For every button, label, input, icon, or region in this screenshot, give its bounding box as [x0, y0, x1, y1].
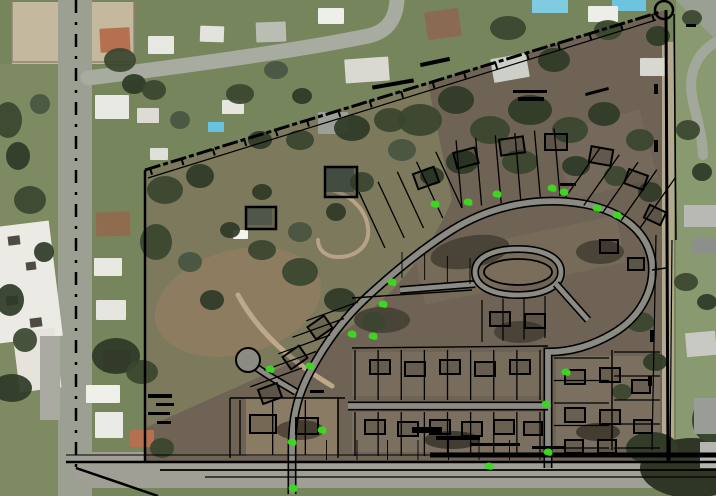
- building-outline: [634, 420, 652, 433]
- tree: [178, 252, 202, 272]
- building-outline: [296, 418, 318, 434]
- terrain-patch: [694, 398, 716, 434]
- tree: [286, 130, 314, 150]
- building-outline: [325, 167, 357, 197]
- tree: [288, 222, 312, 242]
- street-tree-marker: [392, 282, 397, 286]
- annotation-mark: [156, 403, 174, 406]
- tree: [612, 384, 632, 400]
- annotation-mark: [470, 443, 520, 446]
- tree: [252, 184, 272, 200]
- building-outline: [246, 207, 276, 229]
- tree: [292, 88, 312, 104]
- house-roof: [96, 211, 131, 236]
- street-tree-marker: [597, 208, 602, 212]
- house-roof: [344, 56, 390, 83]
- tree: [13, 328, 37, 352]
- street-tree-marker: [497, 194, 502, 198]
- tree: [562, 156, 590, 176]
- terrain-patch: [684, 205, 716, 227]
- tree: [264, 61, 288, 79]
- street-tree-marker: [373, 336, 378, 340]
- tree: [142, 80, 166, 100]
- annotation-mark: [532, 446, 566, 449]
- tree: [14, 186, 46, 214]
- building-outline: [524, 422, 542, 435]
- tree: [30, 94, 50, 114]
- building-outline: [405, 362, 425, 376]
- terrain-patch: [40, 336, 60, 420]
- annotation-mark: [650, 330, 654, 342]
- street-tree-marker: [322, 430, 327, 434]
- street-tree-marker: [617, 215, 622, 219]
- house-roof: [424, 8, 462, 40]
- annotation-mark: [654, 84, 658, 94]
- house-roof: [95, 95, 129, 119]
- tree: [220, 222, 240, 238]
- street-tree-marker: [293, 488, 298, 492]
- annotation-mark: [310, 390, 324, 393]
- house-roof: [256, 21, 287, 42]
- building-outline: [525, 314, 545, 328]
- building-outline: [475, 362, 495, 376]
- tree: [388, 139, 416, 161]
- terrain-patch: [26, 261, 37, 270]
- tree: [126, 360, 158, 384]
- annotation-mark: [686, 24, 696, 27]
- street-tree-marker: [468, 202, 473, 206]
- street-tree-marker: [383, 304, 388, 308]
- house-roof: [94, 258, 122, 276]
- house-roof: [130, 430, 154, 447]
- building-outline: [510, 360, 530, 374]
- annotation-mark: [560, 183, 576, 186]
- street-tree-marker: [292, 442, 297, 446]
- street-tree-marker: [552, 188, 557, 192]
- tree: [643, 353, 667, 371]
- house-roof: [200, 26, 225, 43]
- tree: [626, 129, 654, 151]
- house-roof: [95, 412, 123, 438]
- tree: [438, 86, 474, 114]
- annotation-mark: [148, 394, 172, 398]
- building-outline: [545, 134, 567, 150]
- building-outline: [565, 408, 585, 422]
- annotation-mark: [648, 376, 652, 386]
- annotation-mark: [654, 140, 658, 152]
- annotation-mark: [513, 90, 547, 93]
- building-outline: [370, 360, 390, 374]
- tree: [682, 10, 702, 26]
- tree: [200, 290, 224, 310]
- building-outline: [462, 422, 482, 436]
- building-outline: [499, 136, 525, 155]
- tree: [490, 16, 526, 40]
- street-tree-marker: [546, 404, 551, 408]
- plat-circle: [484, 259, 552, 285]
- building-outline: [628, 258, 644, 270]
- building-outline: [600, 368, 620, 382]
- house-roof: [150, 148, 168, 160]
- terrain-patch: [7, 235, 20, 245]
- tree: [588, 102, 620, 126]
- tree: [692, 163, 712, 181]
- building-outline: [365, 420, 385, 434]
- tree: [248, 240, 276, 260]
- tree: [186, 164, 214, 188]
- annotation-mark: [436, 436, 480, 440]
- building-outline: [440, 360, 460, 374]
- building-outline: [250, 415, 276, 433]
- plat-circle: [236, 348, 260, 372]
- house-roof: [318, 8, 344, 24]
- street-tree-marker: [566, 372, 571, 376]
- aerial-plat-canvas: [0, 0, 716, 496]
- map-viewport[interactable]: [0, 0, 716, 496]
- street-tree-marker: [270, 369, 275, 373]
- tree: [676, 120, 700, 140]
- building-outline: [490, 312, 510, 326]
- street-tree-marker: [489, 466, 494, 470]
- tree: [326, 203, 346, 221]
- building-outline: [598, 440, 616, 453]
- street-tree-marker: [435, 204, 440, 208]
- tree: [34, 242, 54, 262]
- tree: [362, 312, 386, 332]
- annotation-mark: [518, 97, 544, 101]
- terrain-patch: [692, 238, 716, 254]
- tree: [226, 84, 254, 104]
- tree: [104, 48, 136, 72]
- terrain-patch: [685, 331, 716, 358]
- annotation-mark: [412, 427, 442, 433]
- house-roof: [640, 58, 668, 76]
- building-outline: [494, 420, 514, 434]
- house-roof: [137, 108, 159, 123]
- tree: [398, 104, 442, 136]
- tree: [674, 273, 698, 291]
- street-tree-marker: [548, 452, 553, 456]
- building-outline: [565, 440, 583, 453]
- tree: [282, 258, 318, 286]
- terrain-patch: [532, 0, 568, 13]
- house-roof: [148, 36, 174, 54]
- tree: [6, 142, 30, 170]
- plat-line: [666, 10, 668, 462]
- house-roof: [96, 300, 126, 320]
- house-roof: [588, 6, 618, 22]
- tree: [147, 176, 183, 204]
- building-outline: [600, 240, 618, 253]
- street-tree-marker: [352, 334, 357, 338]
- building-outline: [589, 146, 613, 166]
- building-outline: [632, 380, 650, 393]
- annotation-mark: [157, 421, 171, 424]
- building-outline: [600, 410, 620, 424]
- terrain-patch: [29, 317, 42, 327]
- house-roof: [86, 385, 120, 403]
- annotation-mark: [148, 412, 170, 415]
- terrain-patch: [208, 122, 224, 132]
- street-tree-marker: [564, 192, 569, 196]
- tree: [170, 111, 190, 129]
- street-tree-marker: [310, 366, 315, 370]
